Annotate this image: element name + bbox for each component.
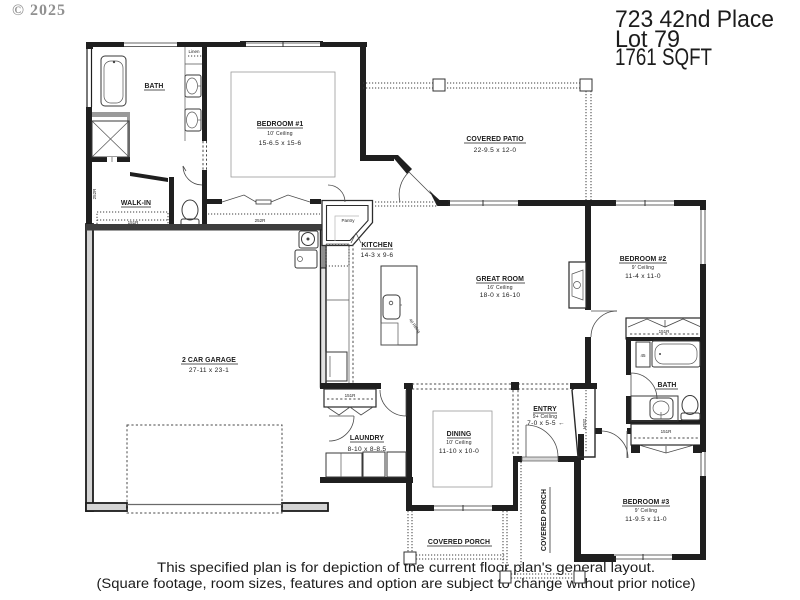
- svg-text:DINING: DINING: [447, 431, 472, 438]
- svg-text:COVERED PATIO: COVERED PATIO: [466, 136, 524, 143]
- svg-text:© 2025: © 2025: [12, 2, 65, 19]
- svg-text:10' Ceiling: 10' Ceiling: [267, 131, 292, 137]
- svg-text:151R: 151R: [582, 419, 587, 431]
- svg-text:22-9.5 x 12-0: 22-9.5 x 12-0: [474, 147, 517, 154]
- svg-text:151R: 151R: [661, 429, 673, 434]
- svg-text:252R: 252R: [92, 188, 97, 200]
- svg-text:11-9.5 x 11-0: 11-9.5 x 11-0: [625, 516, 667, 523]
- svg-text:27-11 x 23-1: 27-11 x 23-1: [189, 367, 229, 374]
- svg-text:ENTRY: ENTRY: [533, 406, 557, 413]
- svg-text:1761 SQFT: 1761 SQFT: [615, 44, 712, 71]
- svg-text:16' Ceiling: 16' Ceiling: [487, 285, 512, 291]
- svg-text:45: 45: [640, 353, 646, 358]
- svg-text:14-3 x 9-6: 14-3 x 9-6: [361, 252, 394, 259]
- svg-text:151R: 151R: [128, 220, 140, 225]
- svg-text:252R: 252R: [255, 218, 267, 223]
- svg-text:BEDROOM #3: BEDROOM #3: [623, 499, 670, 506]
- svg-text:BEDROOM #1: BEDROOM #1: [257, 121, 304, 128]
- svg-text:151R: 151R: [345, 393, 357, 398]
- svg-text:WALK-IN: WALK-IN: [121, 200, 151, 207]
- svg-text:KITCHEN: KITCHEN: [361, 242, 392, 249]
- svg-text:10' Ceiling: 10' Ceiling: [446, 440, 471, 446]
- svg-text:8-10 x 8-8.5: 8-10 x 8-8.5: [348, 446, 387, 453]
- svg-text:2 CAR GARAGE: 2 CAR GARAGE: [182, 357, 236, 364]
- svg-text:(Square footage, room sizes, f: (Square footage, room sizes, features an…: [97, 576, 696, 591]
- svg-text:9' Ceiling: 9' Ceiling: [635, 508, 657, 514]
- svg-text:BATH: BATH: [657, 382, 676, 389]
- svg-text:LAUNDRY: LAUNDRY: [350, 435, 384, 442]
- svg-text:Linen: Linen: [188, 49, 200, 54]
- svg-text:18-0 x 16-10: 18-0 x 16-10: [480, 292, 521, 299]
- svg-text:11-4 x 11-0: 11-4 x 11-0: [625, 273, 661, 280]
- svg-text:9' Ceiling: 9' Ceiling: [632, 265, 654, 271]
- svg-text:151R: 151R: [659, 329, 671, 334]
- svg-text:COVERED PORCH: COVERED PORCH: [541, 489, 548, 551]
- svg-text:BEDROOM #2: BEDROOM #2: [620, 256, 667, 263]
- svg-text:BATH: BATH: [144, 83, 163, 90]
- svg-text:11-10 x 10-0: 11-10 x 10-0: [439, 448, 479, 455]
- svg-text:15-6.5 x 15-6: 15-6.5 x 15-6: [259, 140, 302, 147]
- svg-text:COVERED PORCH: COVERED PORCH: [428, 539, 490, 546]
- svg-text:7-0 x 5-5 ←: 7-0 x 5-5 ←: [527, 420, 565, 427]
- svg-text:GREAT ROOM: GREAT ROOM: [476, 276, 524, 283]
- svg-text:Pantry: Pantry: [341, 218, 355, 223]
